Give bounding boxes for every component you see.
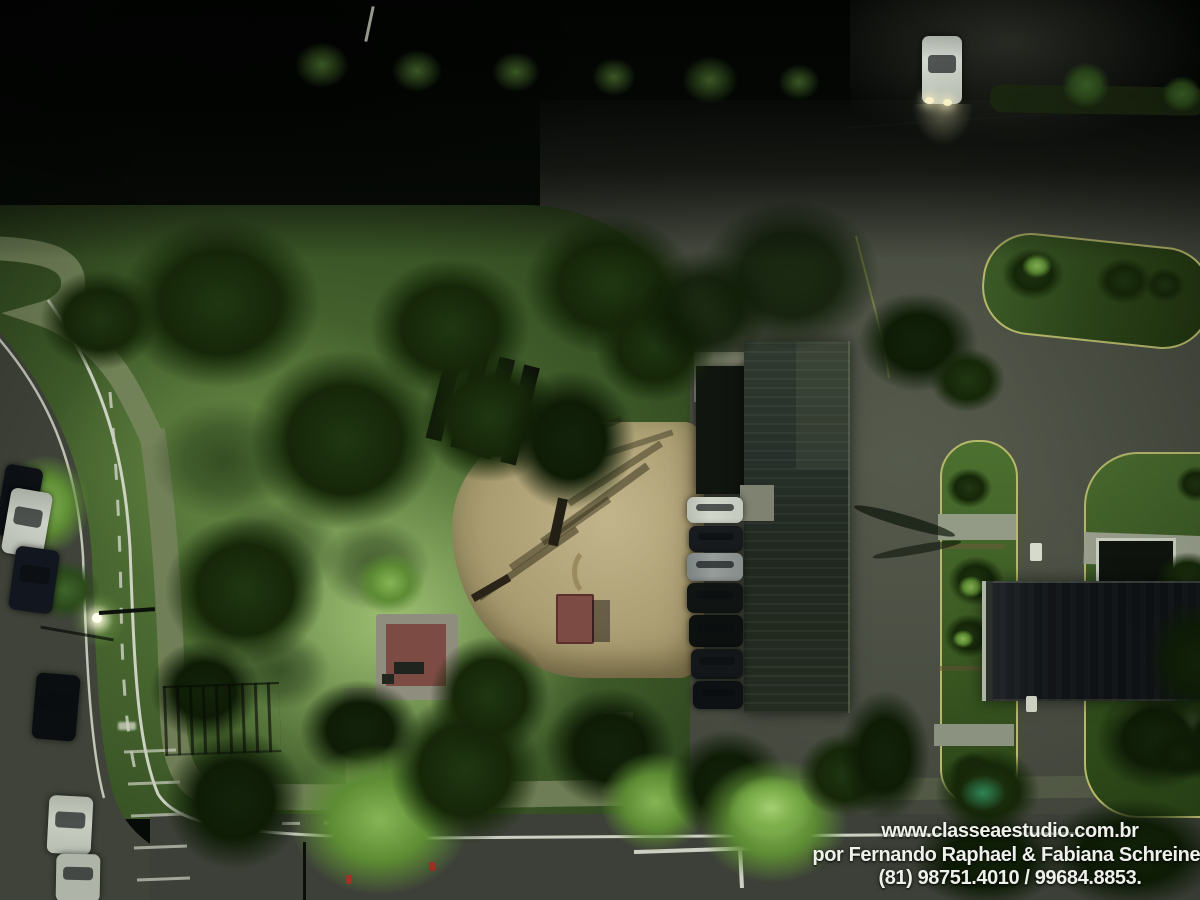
plaza-bench — [394, 662, 424, 674]
tree-canopy-dim — [682, 56, 738, 104]
parked-car — [689, 615, 743, 647]
parked-car — [691, 649, 743, 679]
island-bush-lit — [952, 630, 974, 648]
watermark-phone: (81) 98751.4010 / 99684.8853. — [800, 867, 1200, 891]
tree-canopy-dim — [778, 64, 820, 100]
island-walkway — [934, 724, 1014, 746]
parked-car-dark-blue — [8, 545, 60, 615]
tree-canopy — [430, 636, 550, 756]
watermark-authors: por Fernando Raphael & Fabiana Schreiner — [800, 844, 1200, 868]
island-bush — [1145, 268, 1185, 302]
tree-canopy — [40, 270, 160, 370]
tree-canopy-dim — [392, 50, 442, 92]
headlight — [925, 97, 934, 104]
tree-canopy — [930, 348, 1005, 412]
roof-highlight — [796, 341, 848, 469]
white-post — [1030, 543, 1042, 561]
night-darkness-topleft — [0, 0, 760, 250]
road-text-marking — [118, 722, 136, 730]
kiosk-shadow — [592, 600, 610, 642]
watermark-url: www.classeaestudio.com.br — [800, 820, 1200, 844]
parked-car — [693, 681, 743, 709]
parked-car — [31, 672, 81, 742]
island-bush — [946, 468, 992, 508]
parked-car — [689, 526, 743, 552]
fence — [163, 682, 281, 756]
teal-light-glow — [960, 775, 1006, 811]
island-bush — [1096, 258, 1152, 304]
tree-canopy-dim — [492, 52, 540, 92]
slide-curve — [572, 546, 612, 598]
tree-canopy-dim — [295, 42, 349, 88]
tree-canopy — [640, 250, 770, 370]
white-post — [1026, 696, 1037, 712]
bush-lit — [355, 552, 425, 614]
parked-car-silver — [687, 553, 743, 581]
parked-car-white — [47, 795, 94, 855]
plant — [1162, 76, 1200, 112]
tree-canopy — [840, 690, 930, 820]
palm-canopy — [505, 370, 635, 510]
island-bush-lit — [958, 576, 984, 598]
watermark: www.classeaestudio.com.br por Fernando R… — [800, 820, 1200, 891]
red-marker — [346, 875, 352, 884]
headlight-beam — [912, 104, 974, 146]
plant — [1062, 62, 1110, 108]
red-marker — [429, 862, 435, 871]
parked-car — [687, 583, 743, 613]
tree-canopy-dim — [592, 58, 636, 96]
light-pole — [303, 842, 306, 900]
parked-van-white — [687, 497, 743, 523]
aerial-night-photo: www.classeaestudio.com.br por Fernando R… — [0, 0, 1200, 900]
plaza-object — [382, 674, 394, 684]
kiosk-red-roof — [556, 594, 594, 644]
building-main-roof — [744, 341, 850, 713]
parked-car-light — [56, 854, 101, 900]
car-with-headlights — [922, 36, 962, 104]
concrete-pad-side — [740, 485, 774, 521]
